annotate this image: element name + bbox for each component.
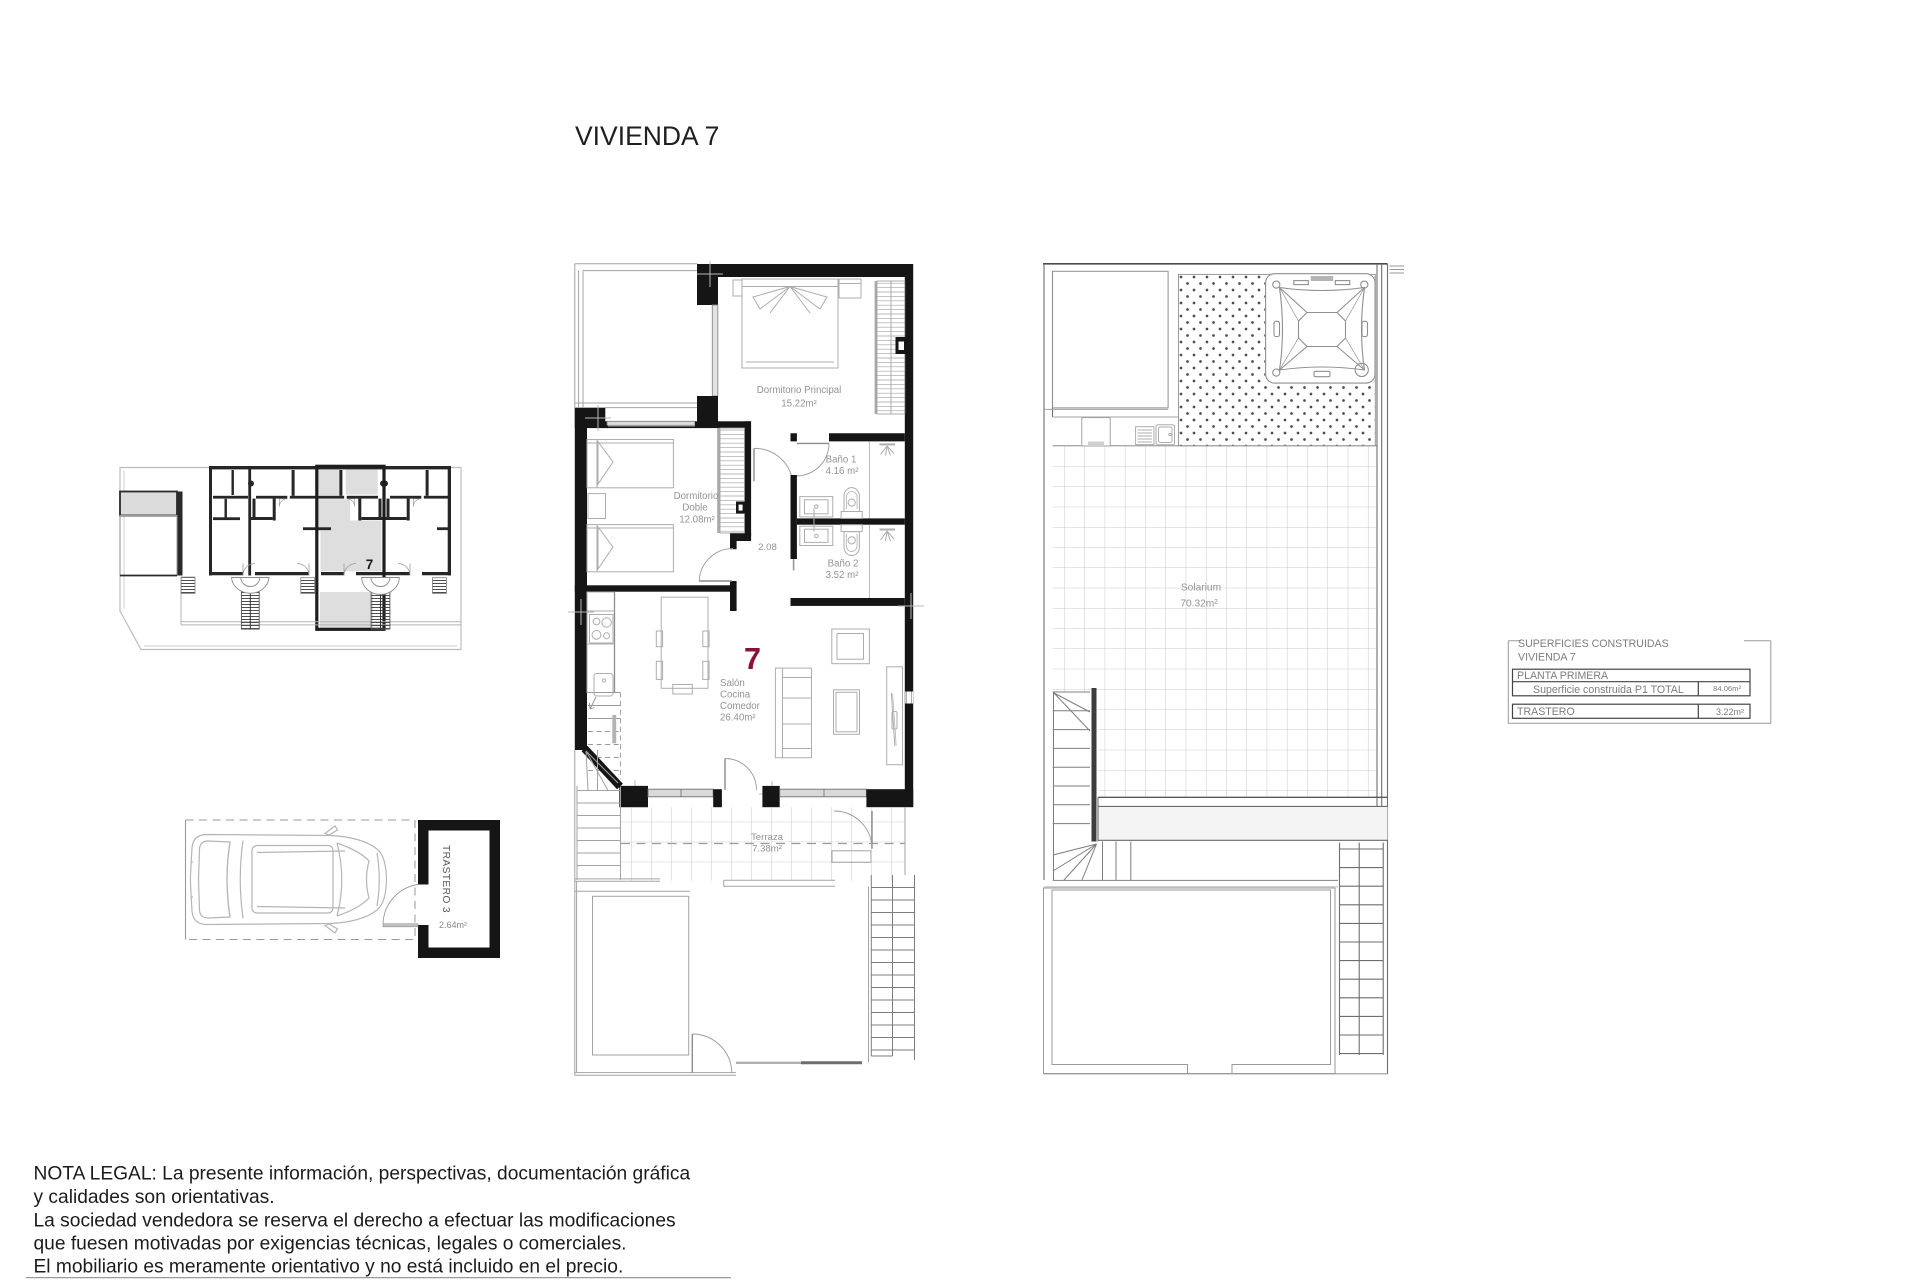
svg-text:Baño 2: Baño 2	[828, 559, 859, 570]
svg-text:Dormitorio: Dormitorio	[674, 491, 719, 502]
svg-text:Doble: Doble	[682, 503, 707, 514]
svg-text:Baño 1: Baño 1	[826, 455, 857, 466]
svg-text:Salón: Salón	[720, 678, 745, 689]
svg-text:26.40m²: 26.40m²	[720, 713, 756, 724]
svg-text:15.22m²: 15.22m²	[781, 399, 817, 410]
svg-text:7.38m²: 7.38m²	[752, 844, 783, 855]
svg-text:Dormitorio Principal: Dormitorio Principal	[757, 385, 842, 396]
svg-text:4.16 m²: 4.16 m²	[826, 466, 860, 477]
svg-text:2.64m²: 2.64m²	[439, 920, 467, 930]
svg-text:7: 7	[366, 557, 374, 572]
svg-text:La sociedad vendedora se reser: La sociedad vendedora se reserva el dere…	[34, 1211, 676, 1232]
svg-text:2.08: 2.08	[758, 542, 777, 553]
svg-text:SUPERFICIES CONSTRUIDAS: SUPERFICIES CONSTRUIDAS	[1518, 638, 1669, 650]
svg-text:TRASTERO: TRASTERO	[1517, 706, 1575, 718]
svg-text:3.22m²: 3.22m²	[1716, 707, 1744, 717]
svg-text:VIVIENDA 7: VIVIENDA 7	[1518, 652, 1576, 664]
svg-text:y calidades son orientativas.: y calidades son orientativas.	[34, 1187, 275, 1208]
svg-text:3.52 m²: 3.52 m²	[826, 570, 860, 581]
svg-text:84.06m²: 84.06m²	[1713, 684, 1741, 693]
svg-text:Cocina: Cocina	[720, 690, 751, 701]
svg-text:Comedor: Comedor	[720, 701, 761, 712]
svg-text:Terraza: Terraza	[751, 832, 784, 843]
svg-text:El mobiliario es meramente ori: El mobiliario es meramente orientativo y…	[34, 1257, 624, 1278]
svg-text:TRASTERO 3: TRASTERO 3	[440, 845, 451, 913]
svg-text:12.08m²: 12.08m²	[679, 515, 715, 526]
svg-text:VIVIENDA 7: VIVIENDA 7	[575, 121, 719, 151]
svg-text:NOTA LEGAL: La presente inform: NOTA LEGAL: La presente información, per…	[34, 1164, 691, 1185]
svg-text:7: 7	[744, 642, 761, 676]
svg-text:Solarium: Solarium	[1181, 583, 1221, 594]
svg-text:que fuesen motivadas por exige: que fuesen motivadas por exigencias técn…	[34, 1234, 627, 1255]
svg-text:70.32m²: 70.32m²	[1180, 599, 1218, 610]
svg-text:PLANTA PRIMERA: PLANTA PRIMERA	[1517, 670, 1609, 682]
svg-text:Superficie construida P1 TOTAL: Superficie construida P1 TOTAL	[1533, 684, 1684, 696]
